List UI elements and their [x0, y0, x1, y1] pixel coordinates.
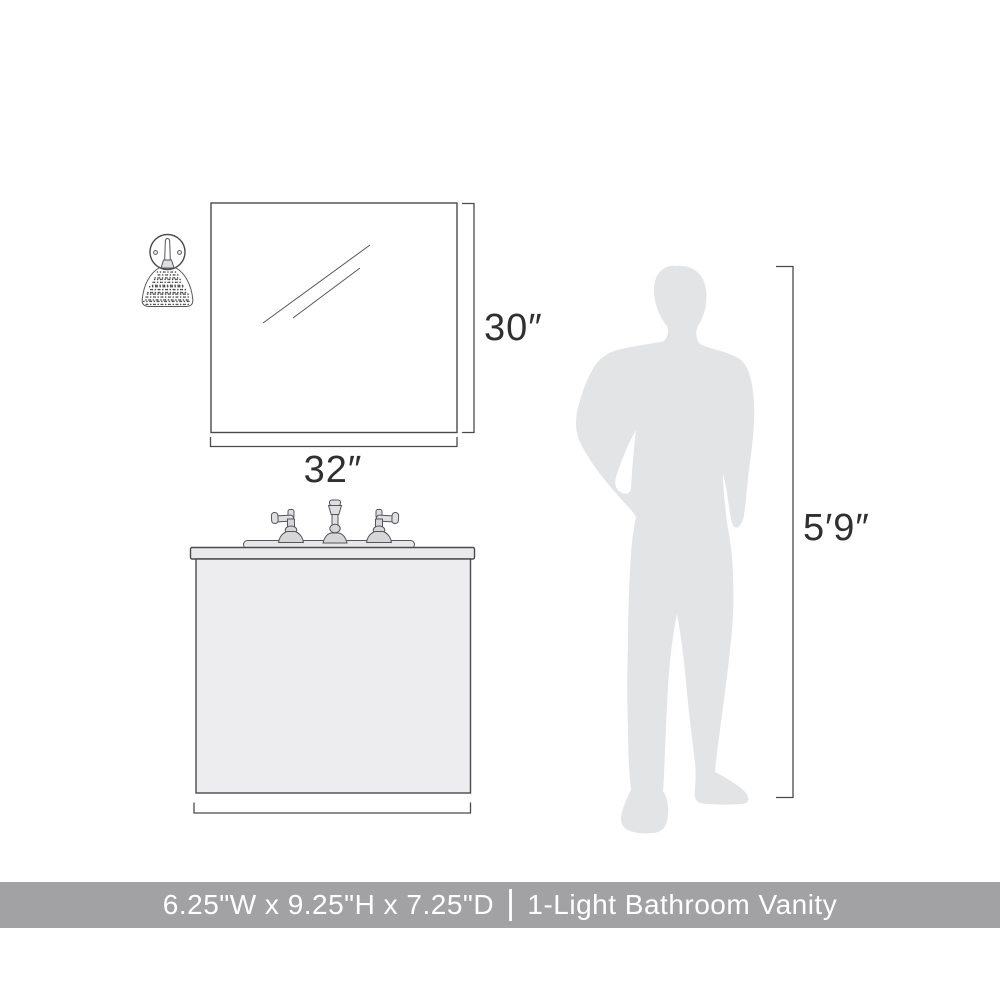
faucet-icon	[271, 500, 399, 543]
mirror-icon	[211, 203, 457, 433]
vanity-cabinet-body	[196, 559, 471, 793]
sconce-screw-left	[154, 251, 158, 255]
vanity-width-dimension-line	[194, 803, 471, 814]
faucet-left-handle	[271, 510, 303, 543]
sconce-socket	[161, 260, 174, 268]
mirror-frame	[211, 203, 457, 433]
vanity-cabinet-icon	[191, 541, 475, 814]
product-banner: 6.25"W x 9.25"H x 7.25"D | 1-Light Bathr…	[0, 882, 1000, 928]
person-height-dimension-line	[776, 267, 793, 798]
person-height-label: 5′9″	[803, 508, 870, 548]
person-silhouette-icon	[576, 266, 754, 834]
banner-product-name: 1-Light Bathroom Vanity	[527, 889, 837, 921]
mirror-height-label: 30″	[484, 308, 543, 348]
mirror-width-dimension-line	[211, 437, 458, 447]
banner-dimensions-text: 6.25"W x 9.25"H x 7.25"D	[163, 889, 494, 921]
vanity-countertop	[191, 548, 475, 560]
wall-sconce-icon	[142, 235, 193, 307]
mirror-height-dimension-line	[462, 204, 474, 433]
diagram-artwork	[0, 0, 1000, 1000]
banner-separator: |	[506, 884, 515, 923]
faucet-right-handle	[367, 510, 399, 543]
product-dimension-diagram: 30″ 32″ 5′9″ 6.25"W x 9.25"H x 7.25"D | …	[0, 0, 1000, 1000]
sconce-screw-right	[178, 251, 182, 255]
faucet-center-spout	[323, 500, 347, 543]
mirror-width-label: 32″	[283, 450, 383, 490]
sconce-stem	[165, 239, 171, 261]
